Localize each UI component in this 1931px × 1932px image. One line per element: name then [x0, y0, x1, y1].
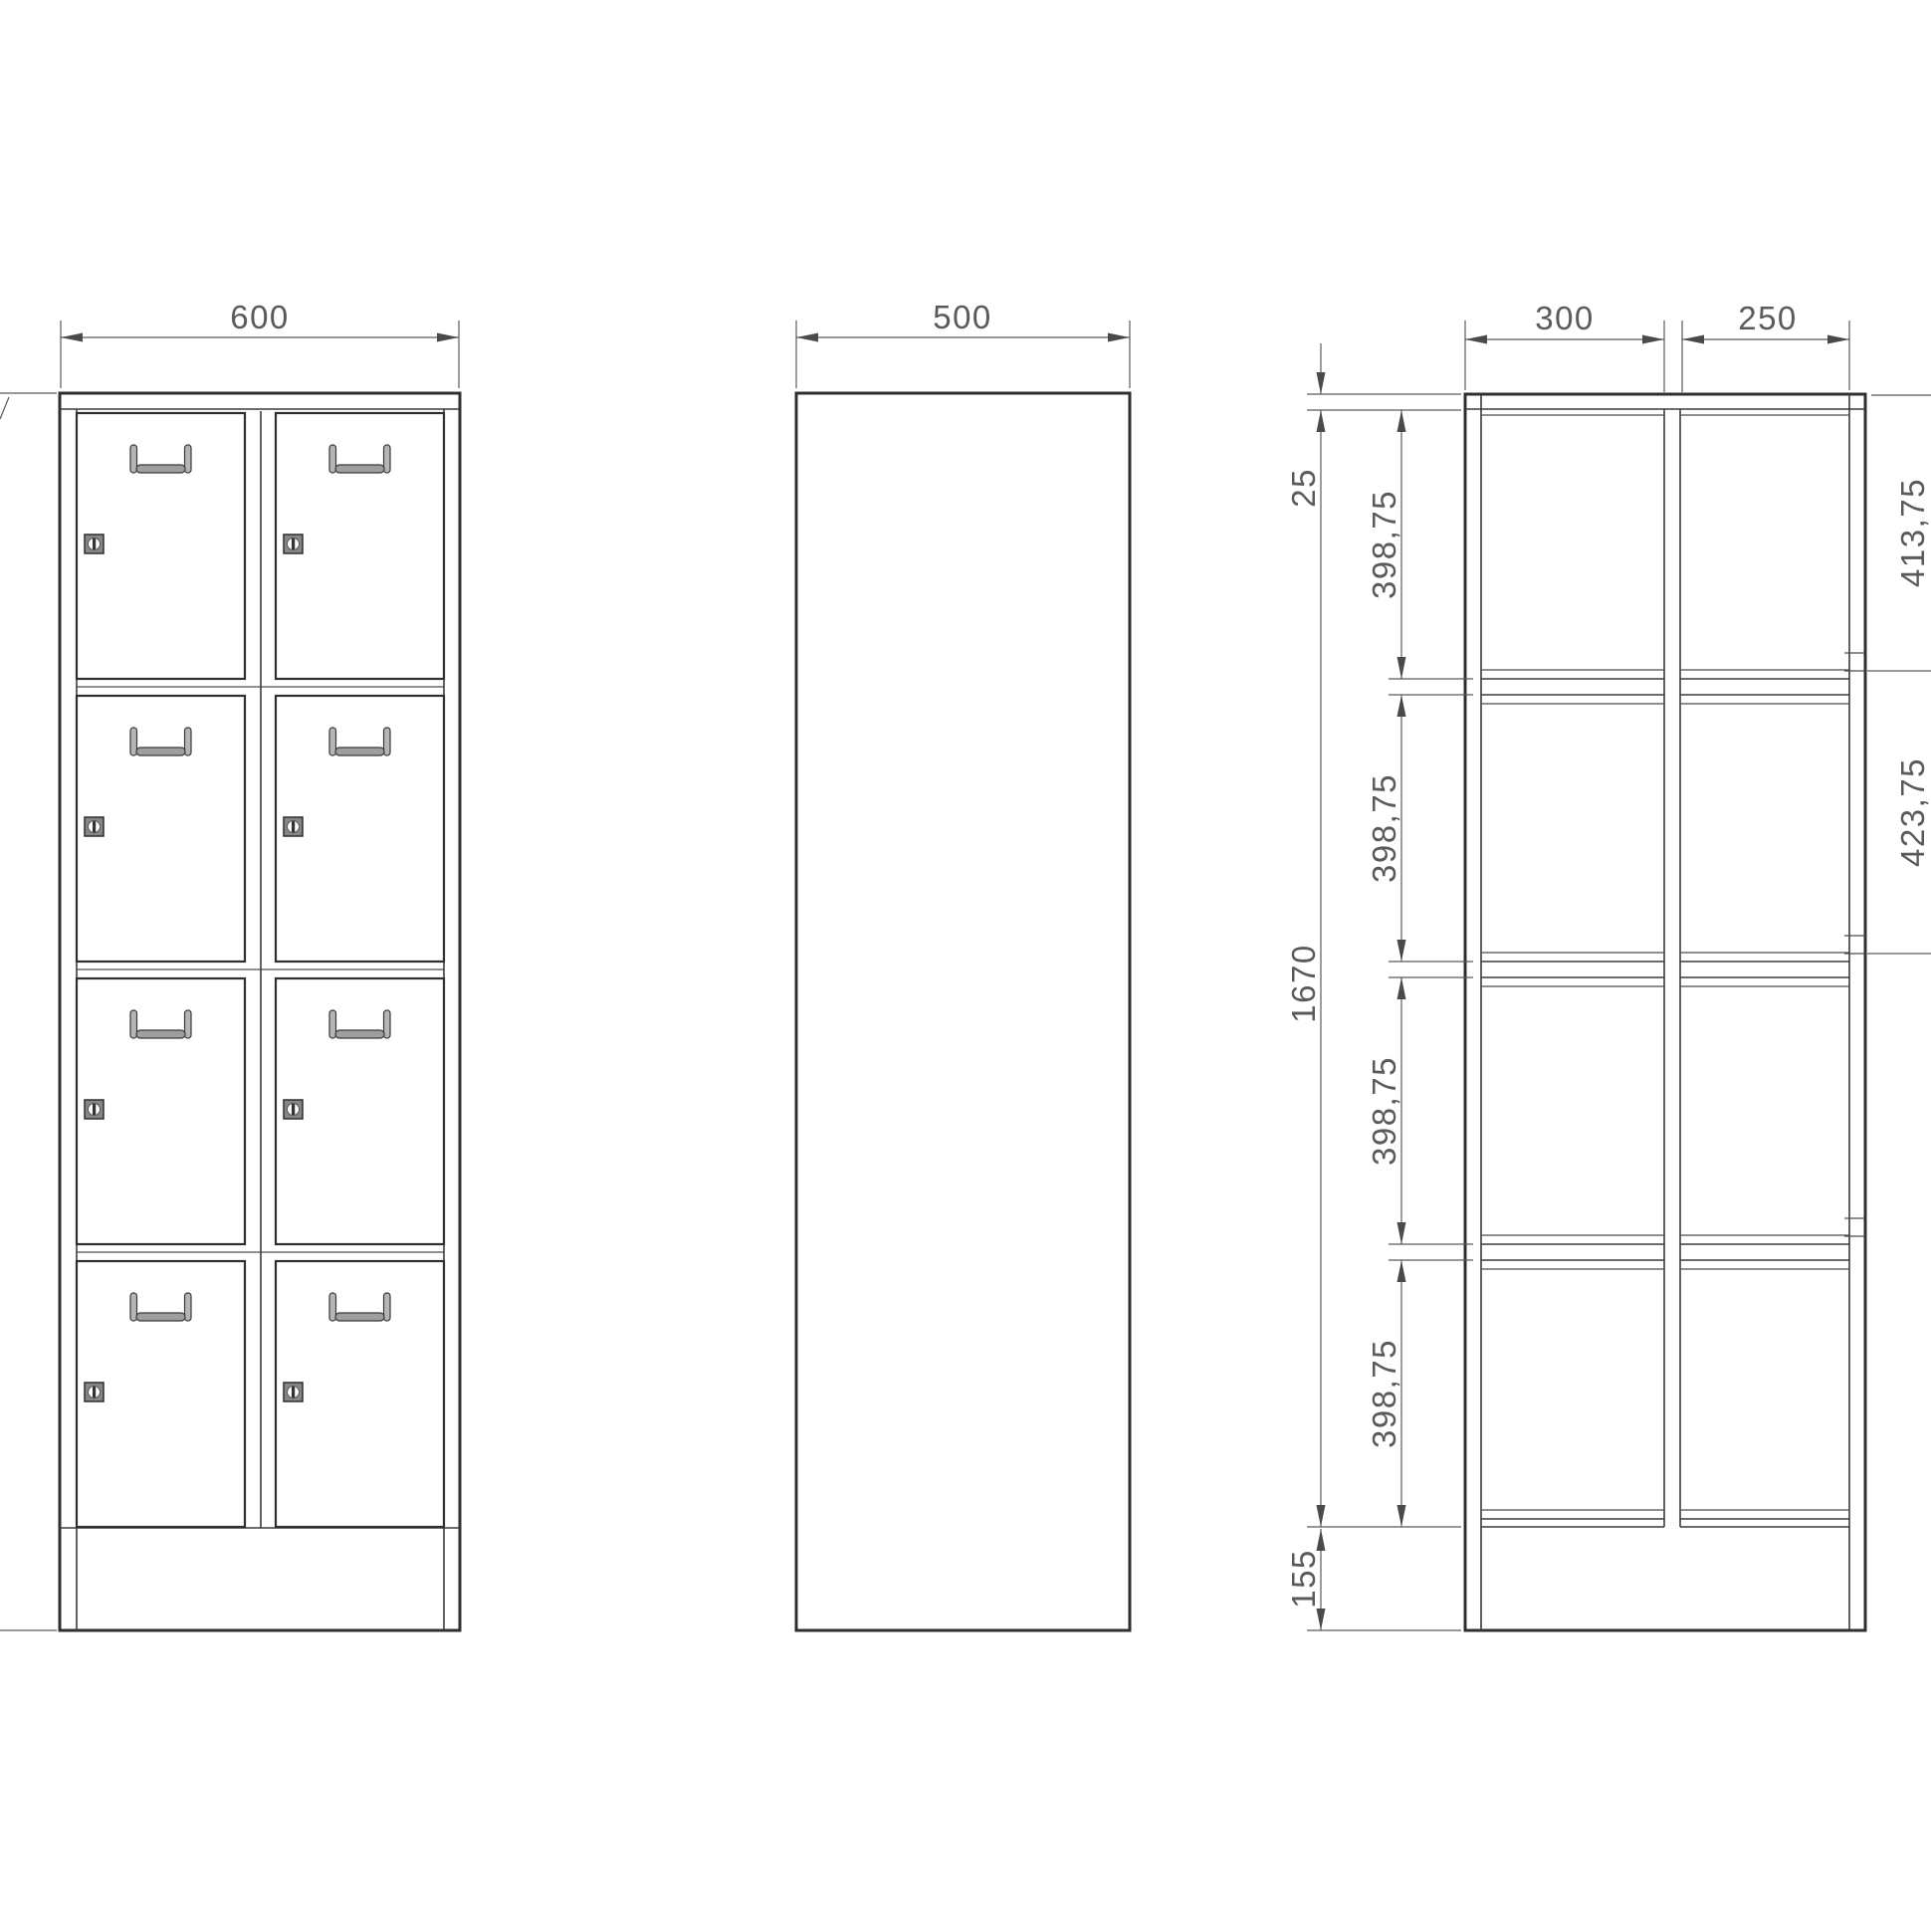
plinth-label: 155	[1285, 1549, 1322, 1609]
side-depth-label: 500	[933, 299, 992, 335]
dim-inner-height: 1670	[1285, 410, 1326, 1527]
locker-door-6	[276, 978, 444, 1244]
opening-label-1: 398,75	[1366, 490, 1402, 599]
section-view: 300 250 25	[1285, 300, 1931, 1630]
drawing-canvas: 600 500	[0, 0, 1931, 1932]
section-shelf-3	[1481, 1235, 1849, 1269]
inner-height-label: 1670	[1285, 944, 1322, 1022]
dim-opening-1: 398,75	[1366, 410, 1406, 679]
top-panel-label: 25	[1285, 468, 1322, 508]
dim-top-door: 413,75	[1867, 395, 1931, 671]
section-shelf-1	[1481, 670, 1849, 704]
locker-technical-drawing: 600 500	[0, 0, 1931, 1932]
dim-opening-4: 398,75	[1366, 1260, 1406, 1527]
side-view: 500	[796, 299, 1130, 1630]
dim-opening-2: 398,75	[1366, 695, 1406, 962]
locker-door-5	[77, 978, 245, 1244]
locker-door-7	[77, 1261, 245, 1527]
right-column-label: 250	[1738, 300, 1798, 336]
dim-door-pitch: 423,75	[1867, 757, 1931, 954]
front-width-label: 600	[230, 299, 290, 335]
section-door-gaps	[1844, 653, 1865, 1236]
dim-front-width: 600	[61, 299, 459, 388]
dim-opening-3: 398,75	[1366, 977, 1406, 1244]
locker-door-4	[276, 696, 444, 962]
top-door-label: 413,75	[1894, 478, 1931, 587]
dim-overall-height-cutoff	[0, 393, 57, 1630]
door-pitch-label: 423,75	[1894, 757, 1931, 867]
front-view: 600	[0, 299, 460, 1630]
opening-label-2: 398,75	[1366, 773, 1402, 883]
dim-right-column: 250	[1682, 300, 1849, 392]
dim-left-column: 300	[1465, 300, 1664, 392]
dim-side-depth: 500	[796, 299, 1130, 388]
left-column-label: 300	[1535, 300, 1595, 336]
section-shelf-2	[1481, 953, 1849, 986]
locker-door-3	[77, 696, 245, 962]
locker-door-2	[276, 413, 444, 679]
locker-door-8	[276, 1261, 444, 1527]
section-floor	[1481, 1510, 1849, 1527]
locker-door-1	[77, 413, 245, 679]
opening-label-3: 398,75	[1366, 1056, 1402, 1166]
dim-plinth: 155	[1285, 1529, 1326, 1630]
opening-label-4: 398,75	[1366, 1339, 1402, 1448]
